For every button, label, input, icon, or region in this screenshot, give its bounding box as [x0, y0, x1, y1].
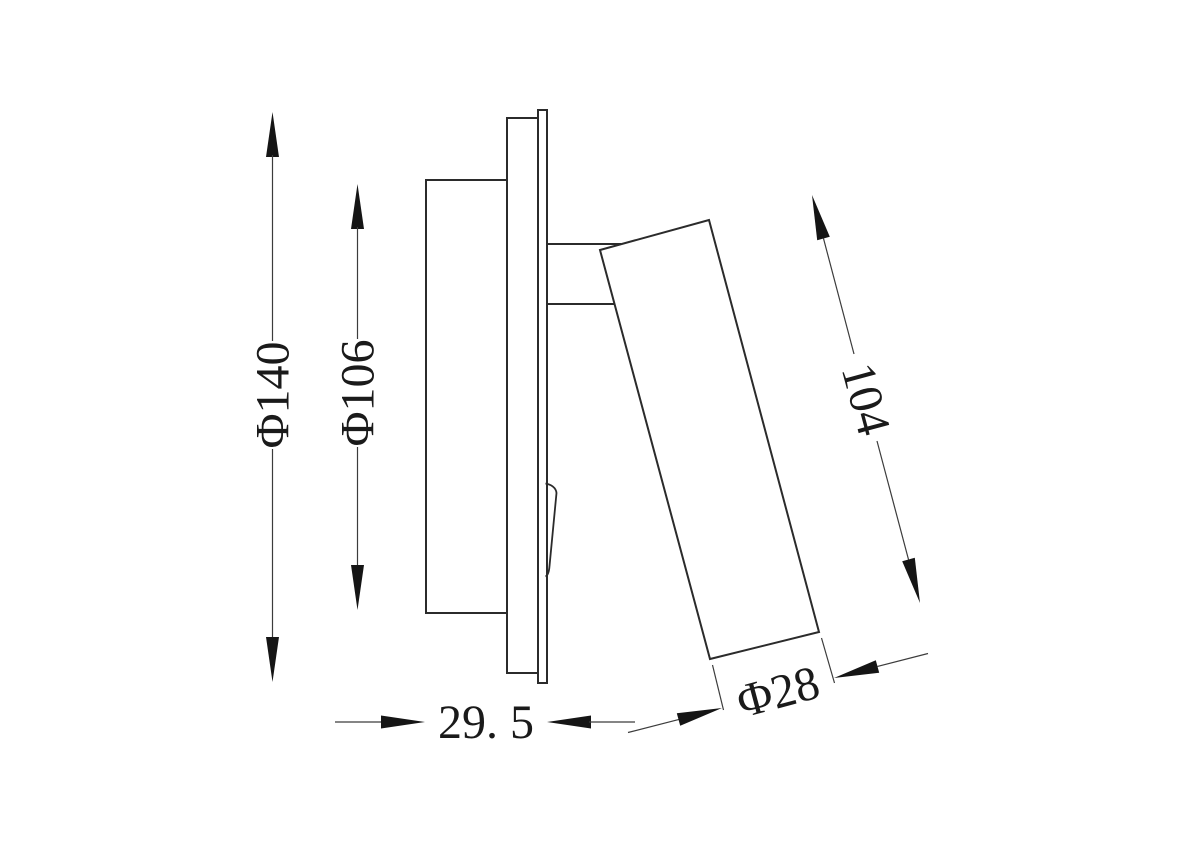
arrowhead-down-icon	[266, 637, 279, 682]
dim-label-faceplate-diameter: Φ140	[246, 341, 299, 448]
faceplate-outline	[507, 118, 538, 673]
dim-label-housing-diameter: Φ106	[331, 339, 384, 446]
arrowhead-up-right-icon	[812, 195, 830, 240]
dim-housing-diameter: Φ106	[331, 184, 384, 610]
arrowhead-inward-left-icon	[677, 708, 722, 726]
arrowhead-inward-right-icon	[381, 716, 425, 729]
extension-line	[713, 665, 724, 710]
dim-line	[628, 719, 679, 732]
dim-label-mounting-depth: 29. 5	[438, 696, 534, 749]
dim-mounting-depth: 29. 5	[335, 696, 635, 749]
spot-head-outline	[600, 220, 819, 659]
recessed-housing-outline	[426, 180, 507, 613]
dim-line	[824, 239, 855, 355]
arrowhead-inward-right-icon	[834, 660, 879, 678]
extension-line	[822, 638, 835, 683]
arrowhead-up-icon	[351, 184, 364, 229]
dim-line	[877, 441, 909, 560]
dim-line	[877, 654, 928, 667]
drawing-page: Φ140 Φ106 104 Φ28	[0, 0, 1200, 848]
arrowhead-up-icon	[266, 112, 279, 157]
arrowhead-down-icon	[351, 565, 364, 610]
dim-faceplate-diameter: Φ140	[246, 112, 299, 682]
dim-label-head-length: 104	[831, 357, 901, 440]
fixture-outline	[426, 110, 819, 683]
technical-drawing-canvas: Φ140 Φ106 104 Φ28	[0, 0, 1200, 848]
dim-label-head-diameter: Φ28	[731, 656, 825, 729]
arrowhead-down-icon	[902, 558, 920, 603]
dim-head-length: 104	[812, 195, 920, 603]
dim-head-diameter: Φ28	[628, 638, 928, 733]
faceplate-rim-outline	[538, 110, 547, 683]
arrowhead-inward-left-icon	[547, 716, 591, 729]
